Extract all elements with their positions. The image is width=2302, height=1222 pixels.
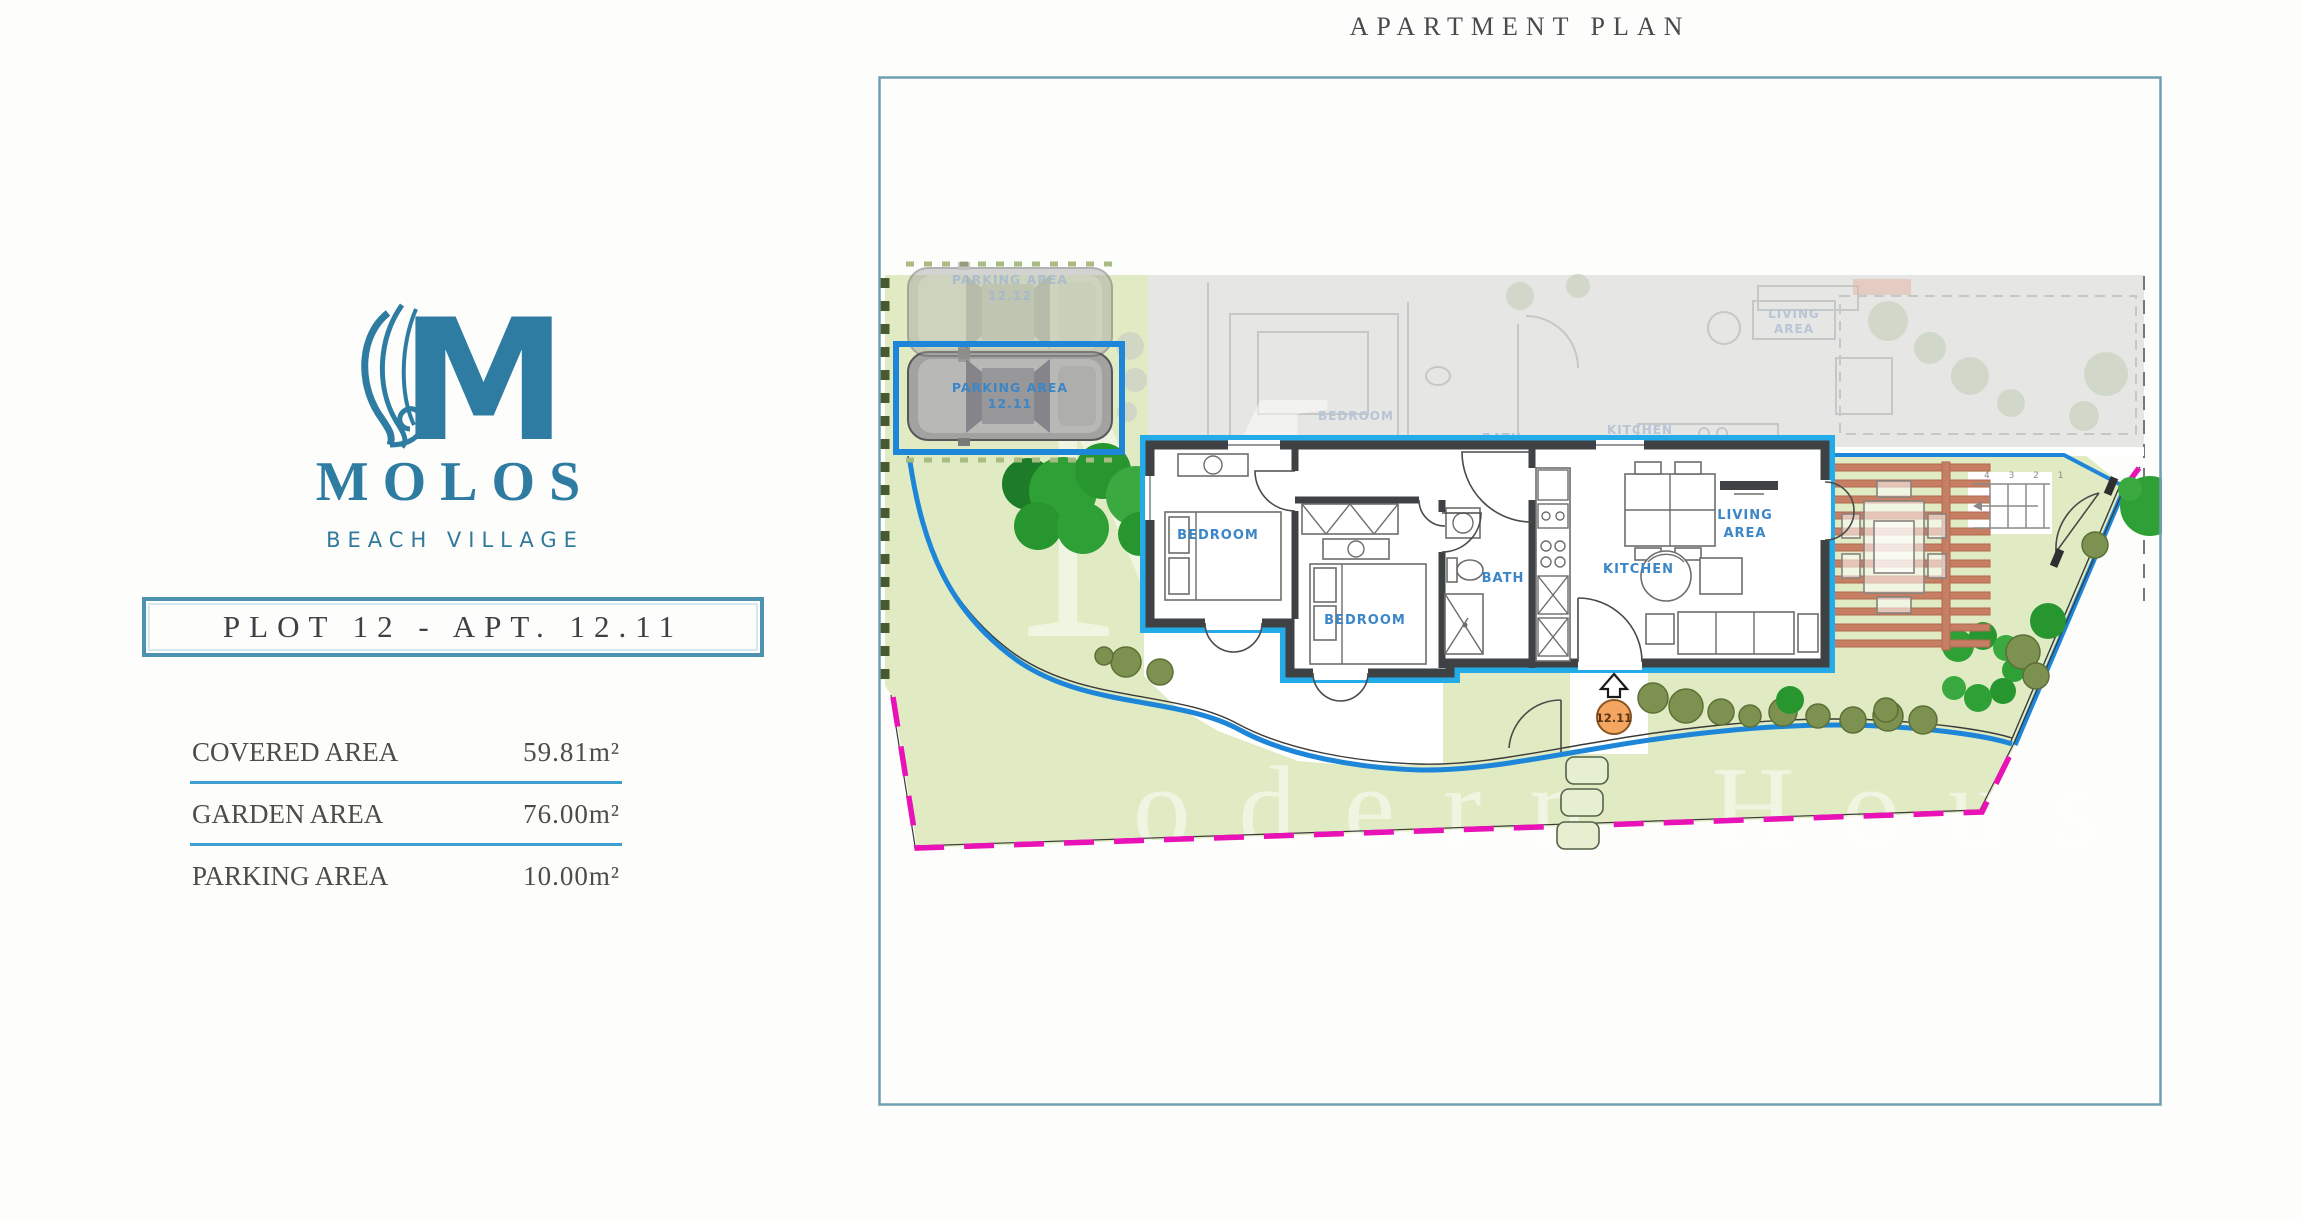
area-label: GARDEN AREA [192,799,383,830]
living-area-label2: AREA [1723,526,1766,541]
bath-label: BATH [1482,571,1525,586]
bedroom1-label: BEDROOM [1177,528,1259,543]
parking-12-11-number: 12.11 [988,396,1033,411]
area-value: 59.81m² [523,737,620,768]
parking-12-11-label: PARKING AREA [952,380,1068,395]
area-table: COVERED AREA 59.81m² GARDEN AREA 76.00m²… [190,722,622,905]
page: APARTMENT PLAN M MOLOS BEACH VILLAGE PLO… [0,0,2302,1222]
plot-label: PLOT 12 - APT. 12.11 [223,609,683,645]
table-row: GARDEN AREA 76.00m² [190,784,622,846]
brand-monogram-logo: M [330,295,580,455]
living-area-label: LIVING [1717,508,1773,523]
parking-zone: PARKING AREA 12.12 PARKING AREA 12.11 [896,262,1122,460]
table-row: PARKING AREA 10.00m² [190,846,622,905]
apartment-plan-sheet: BEDROOM BATH KITCHEN LIVING AREA M odern… [878,76,2162,1106]
neighbor-living-label2: AREA [1774,322,1814,336]
plot-label-box: PLOT 12 - APT. 12.11 [142,597,764,657]
parking-12-12-number: 12.12 [988,288,1033,303]
area-label: PARKING AREA [192,861,388,892]
table-row: COVERED AREA 59.81m² [190,722,622,784]
area-label: COVERED AREA [192,737,398,768]
badge-number: 12.11 [1596,711,1632,725]
neighbor-living-label: LIVING [1768,307,1820,321]
bedroom2-label: BEDROOM [1324,613,1406,628]
area-value: 76.00m² [523,799,620,830]
brand-panel: M MOLOS BEACH VILLAGE PLOT 12 - APT. 12.… [0,0,860,1222]
parking-12-12-label: PARKING AREA [952,272,1068,287]
page-title: APARTMENT PLAN [1220,12,1820,42]
monogram-letter: M [400,295,567,455]
kitchen-label: KITCHEN [1603,562,1674,577]
stair-step-numbers: 4 3 2 1 [1984,471,2072,481]
area-value: 10.00m² [523,861,620,892]
kitchen-counter [1536,468,1570,661]
brand-tagline: BEACH VILLAGE [130,528,780,552]
brand-name: MOLOS [130,450,780,514]
neighbor-kitchen-label: KITCHEN [1607,423,1673,437]
